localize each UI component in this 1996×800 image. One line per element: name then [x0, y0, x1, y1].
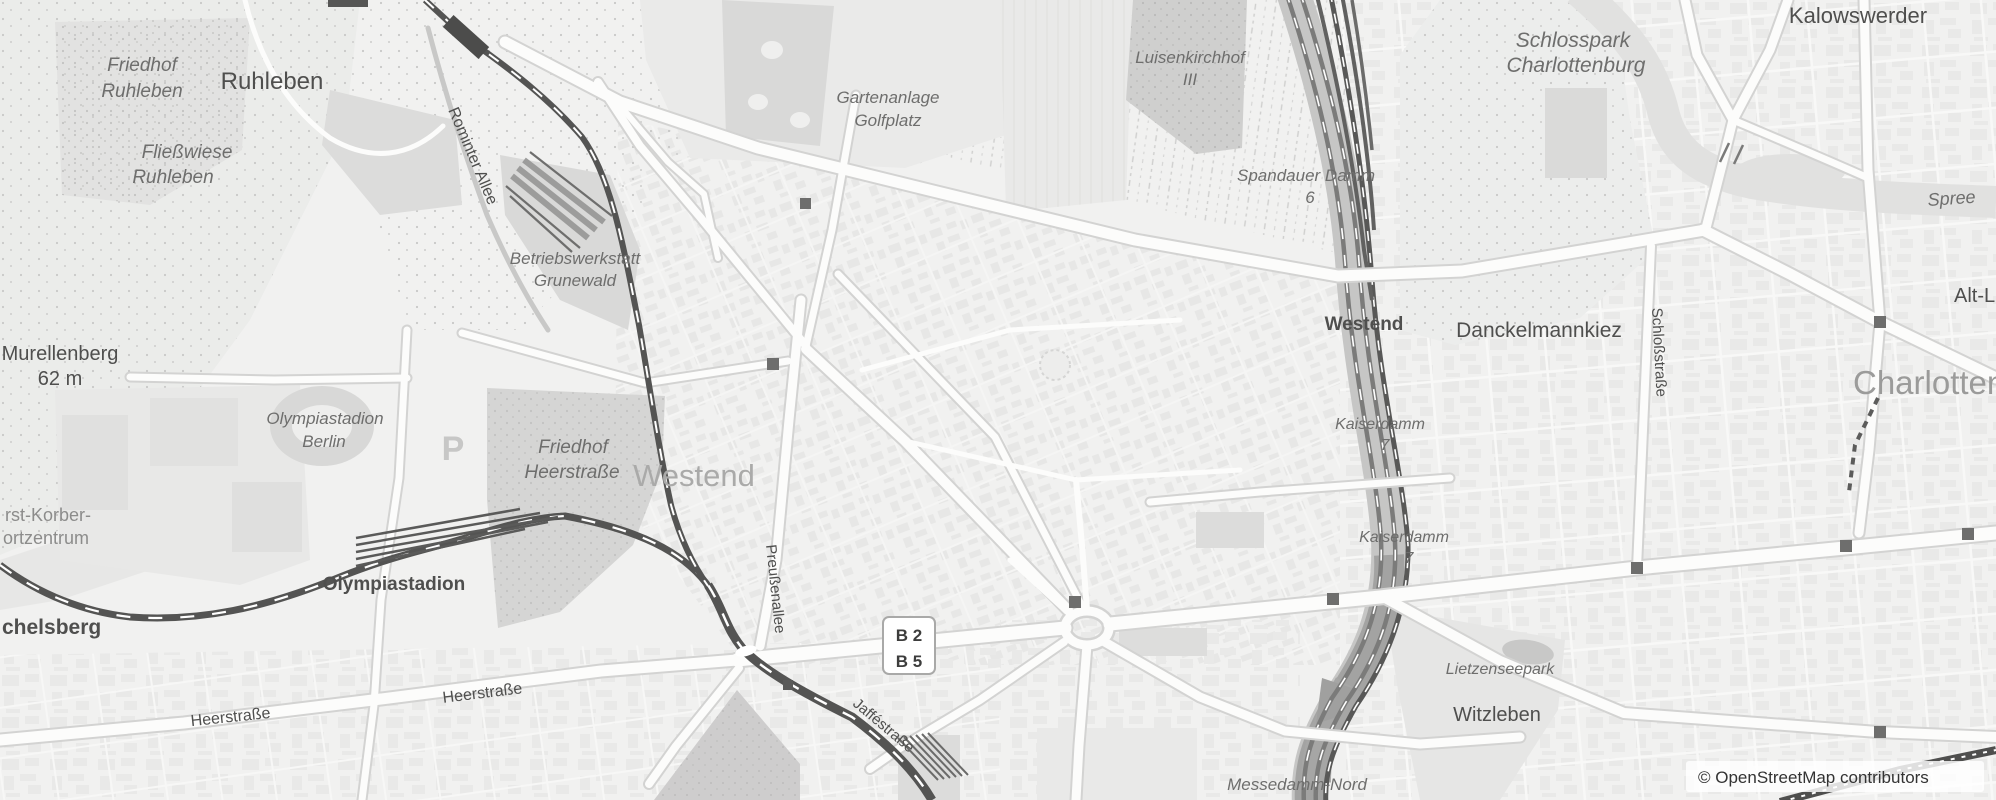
svg-text:Kaiserdamm: Kaiserdamm [1335, 416, 1425, 433]
svg-text:Witzleben: Witzleben [1453, 704, 1541, 726]
svg-text:Olympiastadion: Olympiastadion [323, 574, 466, 595]
svg-text:B 5: B 5 [896, 652, 922, 671]
svg-text:Gartenanlage: Gartenanlage [836, 88, 939, 107]
svg-text:Ruhleben: Ruhleben [101, 81, 182, 102]
svg-text:III: III [1183, 70, 1197, 89]
svg-text:Messedamm-Nord: Messedamm-Nord [1227, 775, 1367, 794]
svg-text:ortzentrum: ortzentrum [3, 528, 89, 548]
svg-text:Ruhleben: Ruhleben [221, 68, 324, 95]
svg-text:Spandauer Damm: Spandauer Damm [1237, 166, 1375, 185]
svg-text:Danckelmannkiez: Danckelmannkiez [1456, 319, 1622, 342]
svg-text:Kalowswerder: Kalowswerder [1789, 3, 1927, 28]
svg-text:Luisenkirchhof: Luisenkirchhof [1135, 48, 1247, 67]
svg-text:Berlin: Berlin [302, 432, 345, 451]
svg-text:6: 6 [1305, 188, 1315, 207]
svg-text:Heerstraße: Heerstraße [524, 462, 619, 483]
svg-text:Golfplatz: Golfplatz [854, 111, 922, 130]
svg-text:Fließwiese: Fließwiese [142, 142, 233, 163]
svg-text:Lietzenseepark: Lietzenseepark [1446, 661, 1556, 678]
svg-text:Charlottenbu: Charlottenbu [1853, 364, 1996, 401]
svg-text:Friedhof: Friedhof [107, 55, 178, 76]
svg-text:Westend: Westend [1325, 314, 1404, 335]
svg-text:Charlottenburg: Charlottenburg [1507, 54, 1646, 77]
svg-text:62 m: 62 m [38, 368, 82, 390]
svg-text:rst-Korber-: rst-Korber- [5, 505, 91, 525]
svg-text:Grunewald: Grunewald [534, 271, 617, 290]
svg-text:7: 7 [1381, 437, 1391, 454]
svg-text:P: P [442, 430, 465, 468]
svg-text:Betriebswerkstatt: Betriebswerkstatt [510, 249, 642, 268]
svg-text:Spree: Spree [1927, 187, 1976, 210]
svg-text:Schlosspark: Schlosspark [1516, 29, 1632, 52]
svg-text:Westend: Westend [633, 458, 755, 493]
svg-text:Alt-Li: Alt-Li [1954, 285, 1996, 307]
svg-text:B 2: B 2 [896, 626, 922, 645]
svg-text:Kaiserdamm: Kaiserdamm [1359, 529, 1449, 546]
svg-text:Ruhleben: Ruhleben [132, 167, 213, 188]
svg-text:Olympiastadion: Olympiastadion [266, 409, 383, 428]
svg-text:© OpenStreetMap contributors: © OpenStreetMap contributors [1698, 768, 1929, 787]
svg-text:Murellenberg: Murellenberg [2, 343, 119, 365]
svg-text:chelsberg: chelsberg [2, 616, 101, 639]
svg-text:Friedhof: Friedhof [538, 437, 609, 458]
svg-text:7: 7 [1405, 550, 1415, 567]
